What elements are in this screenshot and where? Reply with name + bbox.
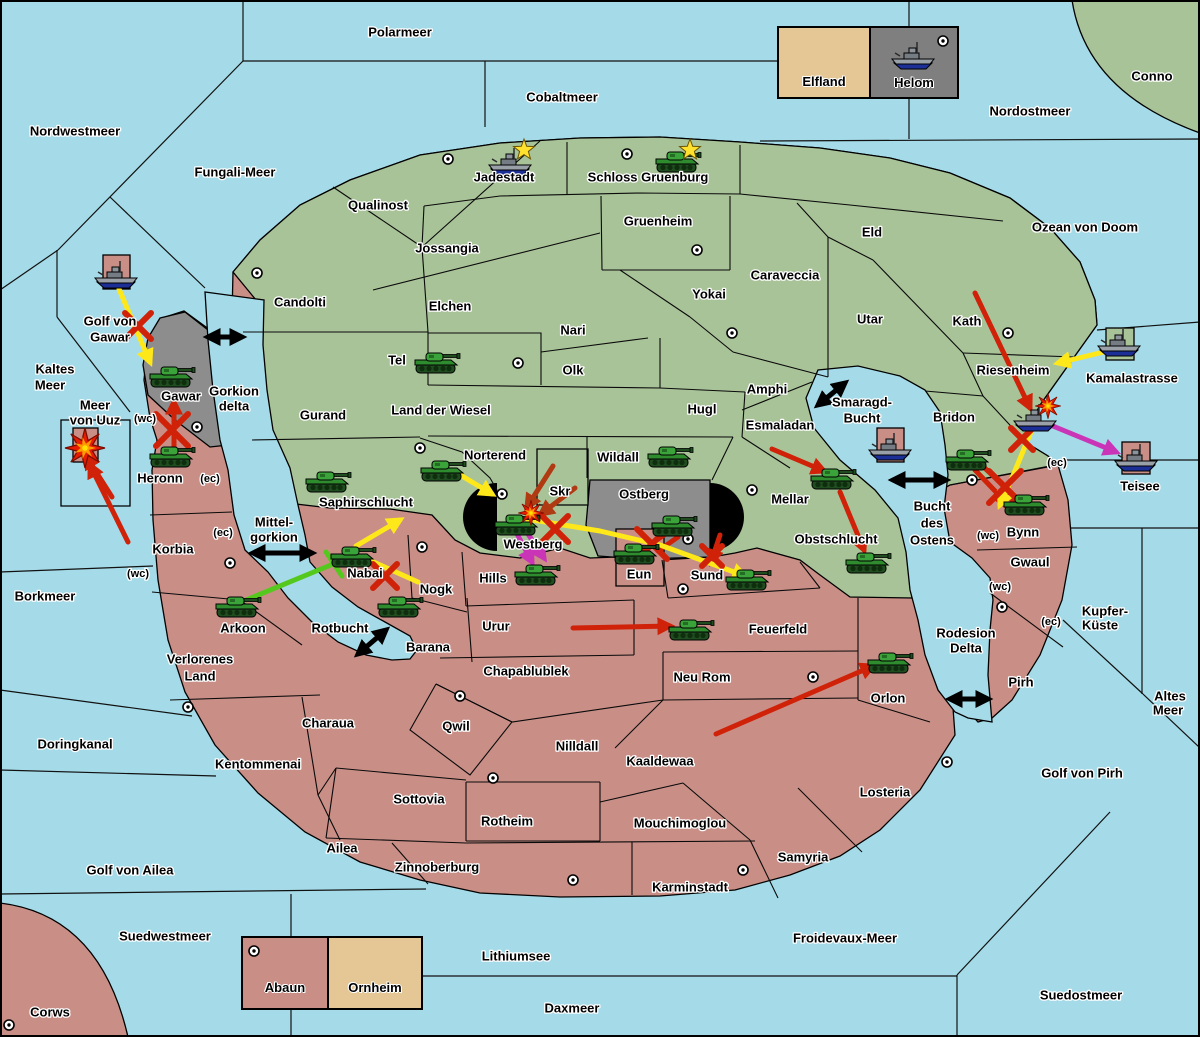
region-label-saphirschlucht[interactable]: Saphirschlucht <box>319 494 414 509</box>
region-label-feuerfeld[interactable]: Feuerfeld <box>749 621 808 636</box>
supply-center-dot <box>942 757 952 767</box>
supply-center-dot <box>747 485 757 495</box>
sea-label-mittel-gorkion[interactable]: Mittel- <box>255 514 293 529</box>
region-label-jadestadt[interactable]: Jadestadt <box>474 169 535 184</box>
region-label-skr[interactable]: Skr <box>550 483 571 498</box>
region-label-gwaul[interactable]: Gwaul <box>1010 554 1049 569</box>
sea-label-golf-von-pirh[interactable]: Golf von Pirh <box>1041 765 1123 780</box>
region-label-hills[interactable]: Hills <box>479 570 506 585</box>
supply-center-dot <box>513 358 523 368</box>
region-label-orlon[interactable]: Orlon <box>871 690 906 705</box>
sea-label-gorkion-delta[interactable]: delta <box>219 398 250 413</box>
region-label-barana[interactable]: Barana <box>406 639 451 654</box>
sea-label-gorkion-delta[interactable]: Gorkion <box>209 383 259 398</box>
region-label-kath[interactable]: Kath <box>953 313 982 328</box>
sea-label-teisee[interactable]: Teisee <box>1120 478 1160 493</box>
sea-label-altes-meer[interactable]: Altes <box>1154 688 1186 703</box>
region-label-eld[interactable]: Eld <box>862 224 882 239</box>
region-label-utar[interactable]: Utar <box>857 311 883 326</box>
sea-label-golf-von-gawar[interactable]: Golf von <box>84 313 137 328</box>
region-label-rotheim[interactable]: Rotheim <box>481 813 533 828</box>
region-label-hugl[interactable]: Hugl <box>688 401 717 416</box>
region-label-schloss-gruenburg[interactable]: Schloss Gruenburg <box>588 169 709 184</box>
sea-label-smaragd-bucht[interactable]: Smaragd- <box>832 394 892 409</box>
sea-label-kupfer-kueste[interactable]: Kupfer- <box>1082 603 1128 618</box>
region-label-gurand[interactable]: Gurand <box>300 407 346 422</box>
region-label-kaaldewaa[interactable]: Kaaldewaa <box>626 753 694 768</box>
region-label-westberg[interactable]: Westberg <box>504 536 563 551</box>
supply-center-dot <box>967 475 977 485</box>
supply-center-dot <box>497 489 507 499</box>
region-label-candolti[interactable]: Candolti <box>274 294 326 309</box>
region-label-caraveccia[interactable]: Caraveccia <box>751 267 820 282</box>
sea-label-altes-meer[interactable]: Meer <box>1153 702 1183 717</box>
explosion-icon <box>1035 393 1061 419</box>
region-label-conno[interactable]: Conno <box>1131 68 1172 83</box>
sea-label-ozean-von-doom[interactable]: Ozean von Doom <box>1032 219 1138 234</box>
region-label-wildall[interactable]: Wildall <box>597 449 639 464</box>
region-label-olk[interactable]: Olk <box>563 362 585 377</box>
region-label-norterend[interactable]: Norterend <box>464 447 526 462</box>
supply-center-dot <box>1003 328 1013 338</box>
sea-label-bucht-des-ostens[interactable]: Ostens <box>910 532 954 547</box>
coast-label-gwaul-west-coast: (wc) <box>989 581 1011 593</box>
region-label-bridon[interactable]: Bridon <box>933 409 975 424</box>
supply-center-dot <box>249 946 259 956</box>
region-label-neu-rom[interactable]: Neu Rom <box>673 669 730 684</box>
region-label-eun[interactable]: Eun <box>627 566 652 581</box>
sea-label-polarmeer[interactable]: Polarmeer <box>368 24 432 39</box>
legend-box-elfland <box>778 27 870 98</box>
sea-label-doringkanal[interactable]: Doringkanal <box>37 736 112 751</box>
attack-arrow-red <box>573 626 670 628</box>
region-label-esmaladan[interactable]: Esmaladan <box>746 417 815 432</box>
region-label-nari[interactable]: Nari <box>560 322 585 337</box>
sea-label-bucht-des-ostens[interactable]: Bucht <box>914 498 952 513</box>
explosion-icon <box>65 428 105 468</box>
supply-center-dot <box>183 702 193 712</box>
region-label-zinnoberburg[interactable]: Zinnoberburg <box>395 859 480 874</box>
region-label-gruenheim[interactable]: Gruenheim <box>624 213 693 228</box>
supply-center-dot <box>455 691 465 701</box>
coast-label-korbia-east-coast: (ec) <box>213 527 233 539</box>
sea-label-golf-von-ailea[interactable]: Golf von Ailea <box>87 862 175 877</box>
region-label-nilldall[interactable]: Nilldall <box>556 738 599 753</box>
coast-label-bynn-west-coast: (wc) <box>977 530 999 542</box>
region-label-riesenheim[interactable]: Riesenheim <box>977 362 1050 377</box>
region-label-jossangia[interactable]: Jossangia <box>415 240 479 255</box>
war-map: PolarmeerNordwestmeerCobaltmeerNordostme… <box>0 0 1200 1037</box>
supply-center-dot <box>622 149 632 159</box>
region-label-tel[interactable]: Tel <box>388 352 406 367</box>
region-label-mouchimoglou[interactable]: Mouchimoglou <box>634 815 726 830</box>
sea-label-rodesion-delta[interactable]: Rodesion <box>936 625 995 640</box>
sea-label-nordostmeer[interactable]: Nordostmeer <box>990 103 1071 118</box>
region-label-heronn[interactable]: Heronn <box>137 470 183 485</box>
region-label-pirh[interactable]: Pirh <box>1008 674 1033 689</box>
region-label-qwil[interactable]: Qwil <box>442 718 469 733</box>
legend-box-ornheim <box>328 937 422 1009</box>
sea-label-kaltes-meer[interactable]: Meer <box>35 377 65 392</box>
region-label-samyria[interactable]: Samyria <box>778 849 829 864</box>
sea-label-kamalastrasse[interactable]: Kamalastrasse <box>1086 370 1178 385</box>
region-label-charaua[interactable]: Charaua <box>302 715 355 730</box>
supply-center-dot <box>417 542 427 552</box>
sea-label-cobaltmeer[interactable]: Cobaltmeer <box>526 89 598 104</box>
supply-center-dot <box>738 865 748 875</box>
region-label-yokai[interactable]: Yokai <box>692 286 726 301</box>
coast-label-gawar-west-coast: (wc) <box>134 413 156 425</box>
supply-center-dot <box>225 558 235 568</box>
region-label-kentommenai[interactable]: Kentommenai <box>215 756 301 771</box>
coast-label-bynn-east-coast: (ec) <box>1047 457 1067 469</box>
region-label-gawar[interactable]: Gawar <box>161 388 201 403</box>
region-label-qualinost[interactable]: Qualinost <box>348 197 409 212</box>
coast-label-gwaul-east-coast: (ec) <box>1041 616 1061 628</box>
sea-label-bucht-des-ostens[interactable]: des <box>921 515 943 530</box>
supply-center-dot <box>443 154 453 164</box>
sea-label-suedwestmeer[interactable]: Suedwestmeer <box>119 928 211 943</box>
region-label-verlorenes-land[interactable]: Verlorenes <box>167 651 234 666</box>
sea-label-lithiumsee[interactable]: Lithiumsee <box>482 948 551 963</box>
coast-label-heronn-east-coast: (ec) <box>200 473 220 485</box>
region-label-ailea[interactable]: Ailea <box>326 840 358 855</box>
sea-label-golf-von-gawar[interactable]: Gawar <box>90 329 130 344</box>
region-label-land-der-wiesel[interactable]: Land der Wiesel <box>391 402 491 417</box>
region-label-urur[interactable]: Urur <box>482 618 509 633</box>
sea-label-smaragd-bucht[interactable]: Bucht <box>844 410 882 425</box>
region-label-sottovia[interactable]: Sottovia <box>393 791 445 806</box>
region-label-chapablublek[interactable]: Chapablublek <box>483 663 569 678</box>
sea-label-kupfer-kueste[interactable]: Küste <box>1082 617 1118 632</box>
region-label-amphi[interactable]: Amphi <box>747 381 787 396</box>
supply-center-dot <box>678 584 688 594</box>
sea-label-suedostmeer[interactable]: Suedostmeer <box>1040 987 1122 1002</box>
region-label-arkoon[interactable]: Arkoon <box>220 620 266 635</box>
sea-label-rodesion-delta[interactable]: Delta <box>950 640 983 655</box>
coast-label-korbia-west-coast: (wc) <box>127 568 149 580</box>
region-label-mellar[interactable]: Mellar <box>771 491 809 506</box>
sea-label-fungali-meer[interactable]: Fungali-Meer <box>195 164 276 179</box>
sea-label-kaltes-meer[interactable]: Kaltes <box>35 361 74 376</box>
region-label-obstschlucht[interactable]: Obstschlucht <box>794 531 878 546</box>
sea-label-mittel-gorkion[interactable]: gorkion <box>250 529 298 544</box>
war-map-svg: PolarmeerNordwestmeerCobaltmeerNordostme… <box>0 0 1200 1037</box>
sea-label-daxmeer[interactable]: Daxmeer <box>545 1000 600 1015</box>
supply-center-dot <box>568 875 578 885</box>
sea-label-meer-von-uuz[interactable]: von Uuz <box>70 412 121 427</box>
supply-center-dot <box>808 672 818 682</box>
region-label-bynn[interactable]: Bynn <box>1007 524 1040 539</box>
supply-center-dot <box>415 443 425 453</box>
supply-center-dot <box>488 773 498 783</box>
region-label-corws[interactable]: Corws <box>30 1004 70 1019</box>
region-label-korbia[interactable]: Korbia <box>152 541 194 556</box>
sea-label-meer-von-uuz[interactable]: Meer <box>80 397 110 412</box>
sea-label-nordwestmeer[interactable]: Nordwestmeer <box>30 123 120 138</box>
sea-label-borkmeer[interactable]: Borkmeer <box>15 588 76 603</box>
supply-center-dot <box>727 328 737 338</box>
supply-center-dot <box>4 1020 14 1030</box>
region-label-sund[interactable]: Sund <box>691 567 724 582</box>
region-label-karminstadt[interactable]: Karminstadt <box>652 879 729 894</box>
supply-center-dot <box>252 268 262 278</box>
explosion-icon <box>518 500 544 526</box>
supply-center-dot <box>192 422 202 432</box>
sea-label-froidevaux-meer[interactable]: Froidevaux-Meer <box>793 930 897 945</box>
region-label-nogk[interactable]: Nogk <box>420 581 453 596</box>
supply-center-dot <box>938 36 948 46</box>
region-label-losteria[interactable]: Losteria <box>860 784 911 799</box>
region-label-verlorenes-land[interactable]: Land <box>184 668 215 683</box>
region-label-ostberg[interactable]: Ostberg <box>619 486 669 501</box>
supply-center-dot <box>692 245 702 255</box>
sea-label-rotbucht[interactable]: Rotbucht <box>311 620 369 635</box>
supply-center-dot <box>997 602 1007 612</box>
region-label-elchen[interactable]: Elchen <box>429 298 472 313</box>
region-label-nabai[interactable]: Nabai <box>347 565 382 580</box>
